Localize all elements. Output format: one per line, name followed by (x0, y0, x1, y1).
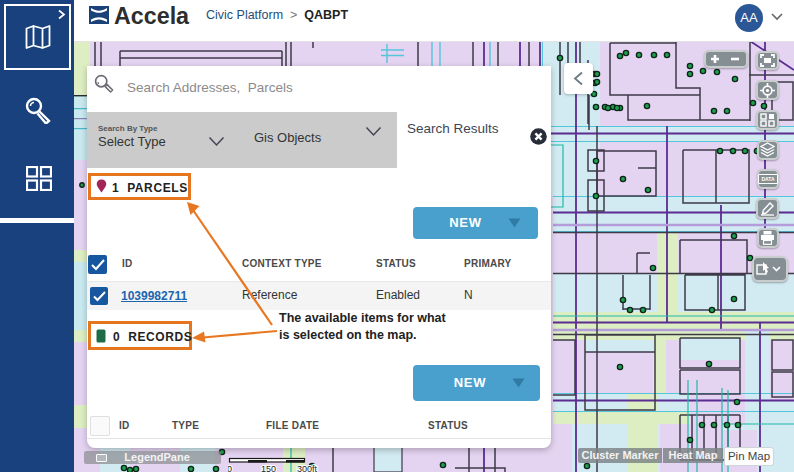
svg-text:0: 0 (228, 464, 232, 472)
svg-text:150: 150 (261, 464, 276, 472)
svg-text:300ft: 300ft (297, 464, 318, 472)
